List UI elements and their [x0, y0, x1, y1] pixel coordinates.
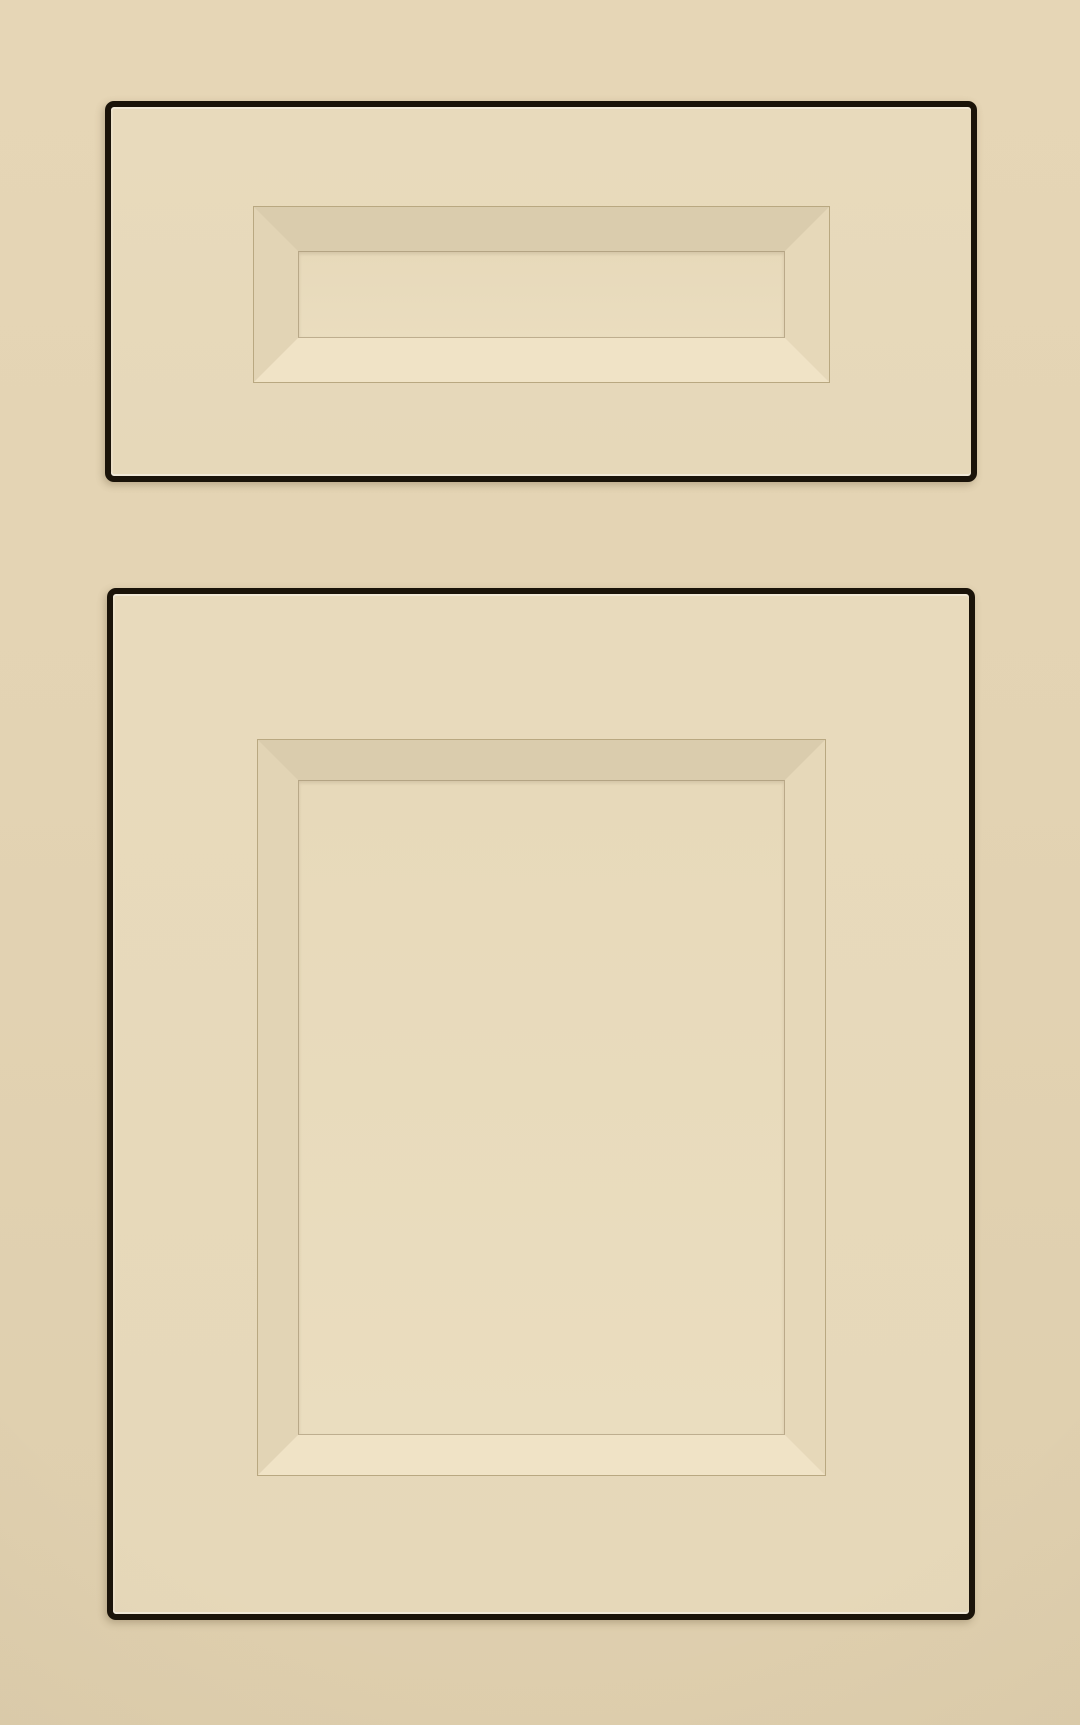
door-center-panel [299, 781, 784, 1434]
cabinet-door [107, 588, 975, 1620]
drawer-front [105, 101, 977, 482]
cabinet-sample-photo [0, 0, 1080, 1725]
drawer-recessed-panel [254, 207, 829, 382]
drawer-center-panel [299, 252, 784, 337]
door-recessed-panel [258, 740, 825, 1475]
